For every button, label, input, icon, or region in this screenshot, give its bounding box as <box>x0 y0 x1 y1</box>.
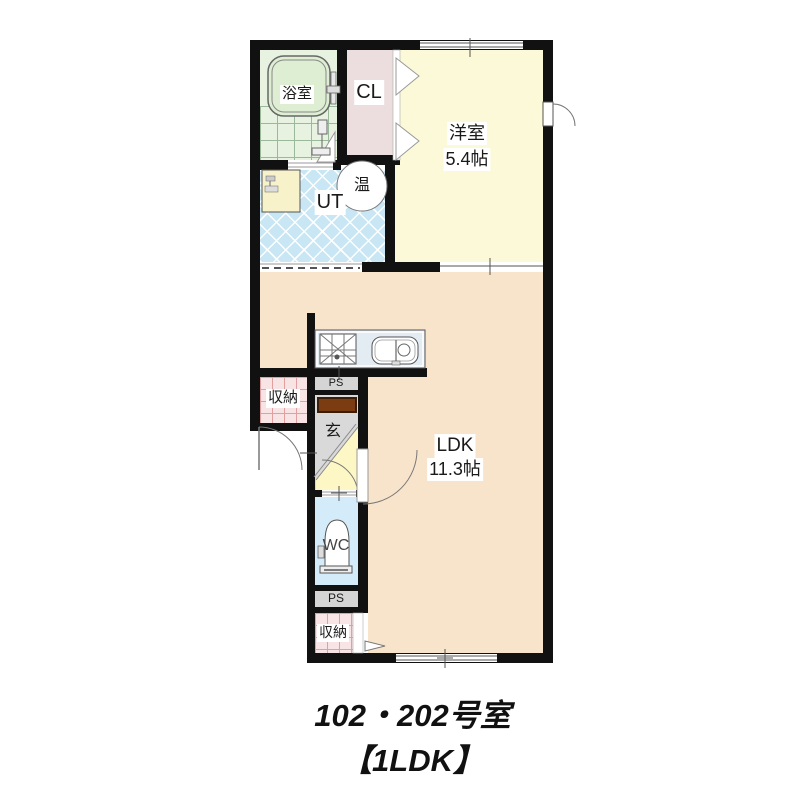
stove-icon <box>320 334 356 364</box>
water-heater-label: 温 <box>352 176 372 196</box>
washbasin-icon <box>262 170 300 212</box>
utility-sliding-door <box>260 262 362 272</box>
bathroom-door-triangle <box>317 132 335 162</box>
ldk-size: 11.3帖 <box>427 458 483 481</box>
closet-cl-label: CL <box>354 80 384 105</box>
sink-icon <box>372 337 418 365</box>
plan-linework <box>0 0 800 800</box>
ldk-door <box>357 449 417 504</box>
storage-bottom-label: 収納 <box>317 624 349 642</box>
unit-layout-type: 【1LDK】 <box>260 735 565 780</box>
entrance-label: 玄 <box>323 422 343 442</box>
wc-label: WC <box>321 536 352 556</box>
shower-icon <box>312 120 330 155</box>
storage-bottom-door <box>353 613 385 653</box>
floorplan: 浴室 CL 温 UT 洋室 5.4帖 LDK 11.3帖 収納 PS 玄 WC … <box>0 0 800 800</box>
storage-mid-label: 収納 <box>266 389 300 408</box>
western-room-exterior-door <box>543 102 575 126</box>
closet-door-triangles <box>393 50 419 160</box>
window-top <box>420 41 523 49</box>
bathroom-label: 浴室 <box>280 85 314 104</box>
western-room-size: 5.4帖 <box>443 148 490 171</box>
pipe-space-lower-label: PS <box>326 591 346 606</box>
utility-label: UT <box>315 190 346 215</box>
ldk-label: LDK <box>435 434 476 458</box>
unit-title: 102・202号室 <box>260 690 565 735</box>
pipe-space-upper-label: PS <box>327 377 346 391</box>
entry-door <box>259 427 302 470</box>
western-room-label: 洋室 <box>447 122 487 145</box>
